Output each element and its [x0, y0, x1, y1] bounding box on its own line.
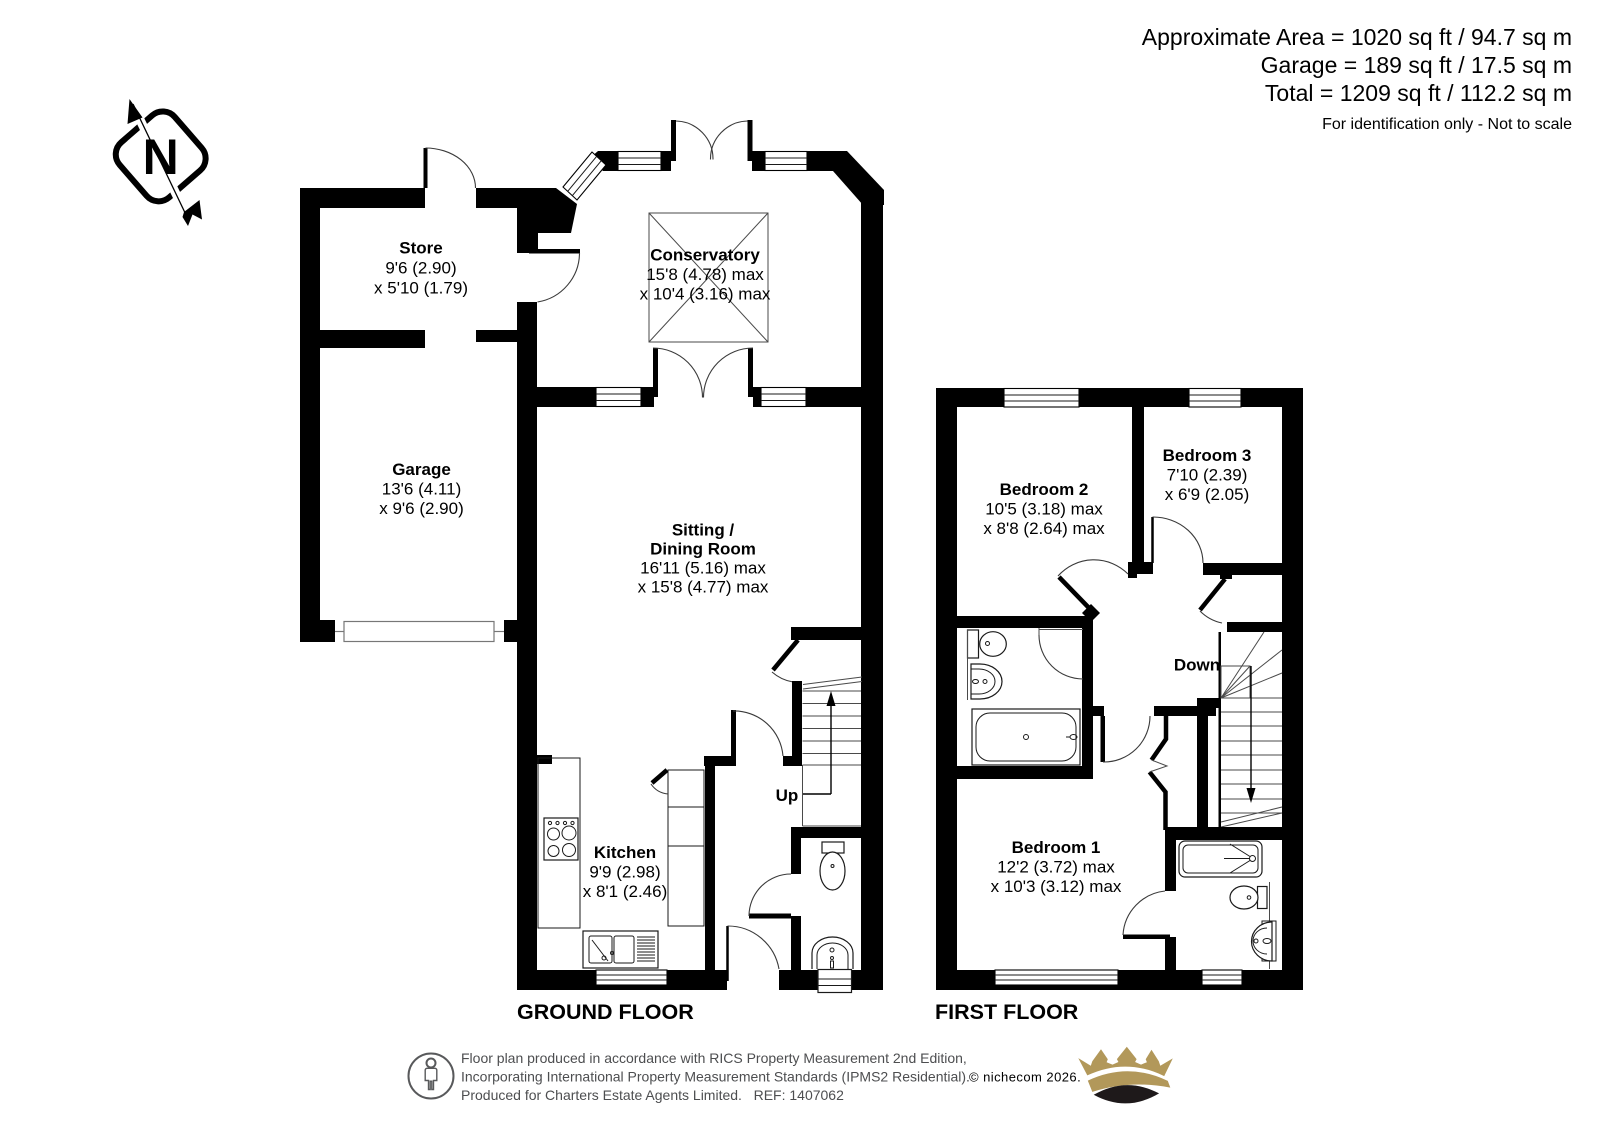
svg-text:FIRST FLOOR: FIRST FLOOR — [935, 1000, 1079, 1024]
svg-text:Garage = 189 sq ft / 17.5 sq m: Garage = 189 sq ft / 17.5 sq m — [1261, 52, 1572, 78]
svg-text:x 5'10 (1.79): x 5'10 (1.79) — [374, 279, 468, 298]
svg-text:9'9 (2.98): 9'9 (2.98) — [589, 863, 660, 882]
svg-text:Conservatory: Conservatory — [650, 246, 760, 265]
svg-text:GROUND FLOOR: GROUND FLOOR — [517, 1000, 694, 1024]
svg-text:Store: Store — [399, 239, 442, 258]
svg-text:x 15'8 (4.77) max: x 15'8 (4.77) max — [638, 578, 769, 597]
svg-text:Total = 1209 sq ft / 112.2 sq: Total = 1209 sq ft / 112.2 sq m — [1265, 80, 1572, 106]
svg-text:7'10 (2.39): 7'10 (2.39) — [1167, 466, 1248, 485]
svg-text:x 10'4 (3.16) max: x 10'4 (3.16) max — [640, 285, 771, 304]
svg-text:Bedroom 3: Bedroom 3 — [1163, 446, 1252, 465]
svg-text:13'6 (4.11): 13'6 (4.11) — [382, 480, 461, 499]
svg-text:Bedroom 1: Bedroom 1 — [1012, 838, 1101, 857]
svg-text:Down: Down — [1174, 656, 1220, 675]
svg-text:For identification only - Not: For identification only - Not to scale — [1322, 116, 1572, 133]
svg-text:x 6'9 (2.05): x 6'9 (2.05) — [1165, 485, 1250, 504]
svg-text:Garage: Garage — [392, 460, 451, 479]
svg-text:9'6 (2.90): 9'6 (2.90) — [385, 259, 456, 278]
svg-text:x 8'8 (2.64) max: x 8'8 (2.64) max — [983, 519, 1105, 538]
svg-text:Dining Room: Dining Room — [650, 540, 756, 559]
svg-text:10'5 (3.18) max: 10'5 (3.18) max — [985, 500, 1103, 519]
svg-text:16'11 (5.16) max: 16'11 (5.16) max — [640, 559, 766, 578]
svg-text:Kitchen: Kitchen — [594, 843, 656, 862]
svg-text:x 8'1 (2.46): x 8'1 (2.46) — [583, 882, 668, 901]
svg-text:x 10'3 (3.12) max: x 10'3 (3.12) max — [991, 877, 1122, 896]
svg-text:Sitting /: Sitting / — [672, 521, 735, 540]
svg-text:x 9'6 (2.90): x 9'6 (2.90) — [379, 499, 464, 518]
svg-text:15'8 (4.78) max: 15'8 (4.78) max — [646, 265, 764, 284]
svg-text:N: N — [143, 129, 179, 185]
svg-text:Bedroom 2: Bedroom 2 — [1000, 480, 1089, 499]
svg-text:Up: Up — [776, 786, 799, 805]
svg-text:Approximate Area = 1020 sq ft: Approximate Area = 1020 sq ft / 94.7 sq … — [1142, 24, 1572, 50]
svg-text:12'2 (3.72) max: 12'2 (3.72) max — [997, 858, 1115, 877]
svg-text:© nichecom 2026.: © nichecom 2026. — [969, 1070, 1081, 1085]
svg-text:Incorporating International Pr: Incorporating International Property Mea… — [461, 1069, 970, 1085]
svg-text:Produced for Charters Estate A: Produced for Charters Estate Agents Limi… — [461, 1087, 844, 1103]
svg-text:Floor plan produced in accorda: Floor plan produced in accordance with R… — [461, 1050, 967, 1066]
